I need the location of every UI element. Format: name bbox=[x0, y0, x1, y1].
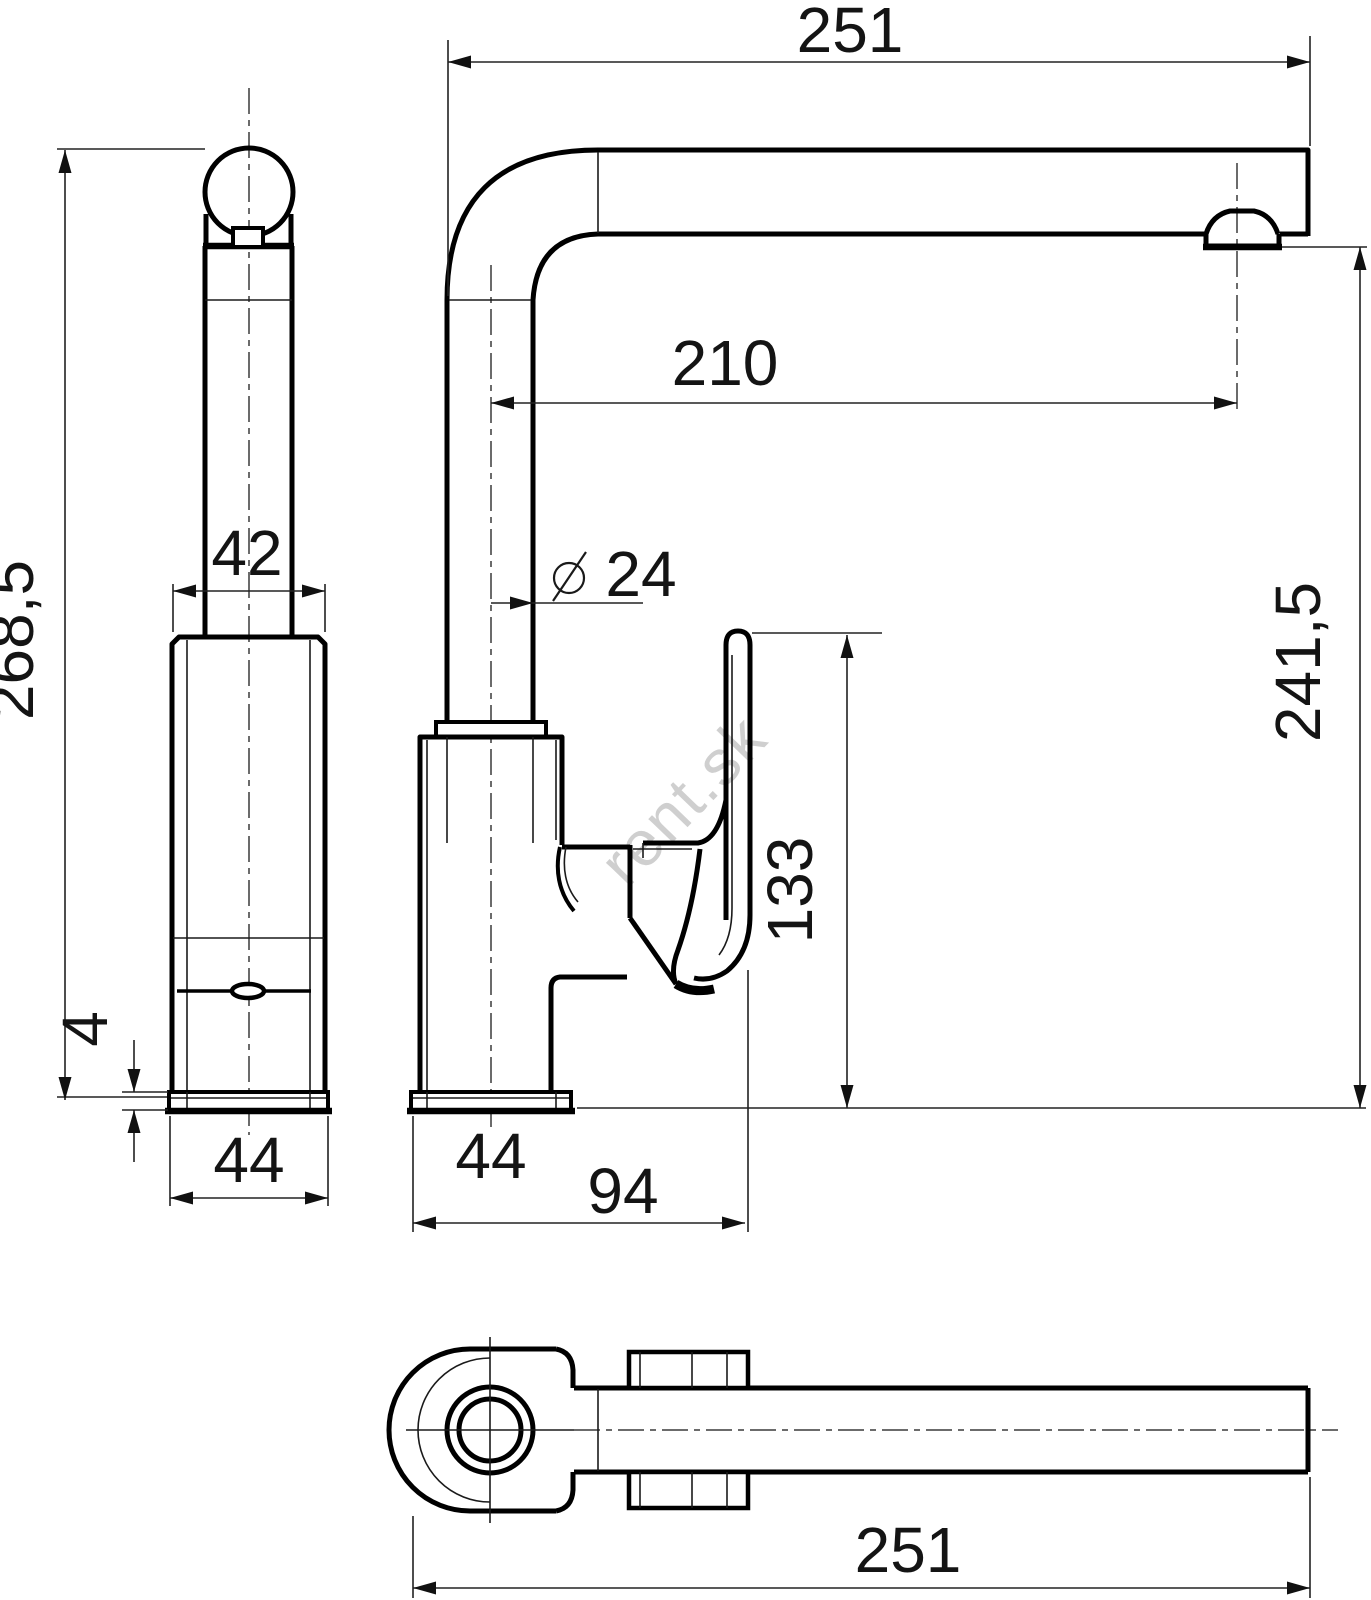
front-view-dimensions: 268,5 42 4 44 bbox=[0, 149, 328, 1206]
dim-handle-height: 133 bbox=[754, 837, 826, 944]
faucet-dimension-drawing: rent.sk 268,5 42 4 bbox=[0, 0, 1371, 1600]
aerator-tab bbox=[233, 228, 263, 247]
top-crosshair bbox=[406, 1337, 574, 1523]
aerator-dome bbox=[1206, 211, 1278, 234]
dim-pipe-diameter: 24 bbox=[605, 538, 676, 610]
spout-transition-lines bbox=[449, 152, 598, 300]
front-base-flange bbox=[169, 1092, 328, 1110]
top-handle-block-lower bbox=[629, 1472, 748, 1508]
side-base-flange bbox=[411, 1092, 571, 1110]
handle-front-curve bbox=[674, 849, 700, 984]
dim-spout-reach-top: 251 bbox=[797, 0, 904, 66]
top-view-dimensions: 251 bbox=[413, 1477, 1310, 1598]
spout-inner bbox=[533, 234, 1206, 723]
hub-diagonal bbox=[630, 918, 676, 984]
top-handle-block-upper bbox=[629, 1352, 748, 1388]
side-view-dimensions: 251 210 24 133 241,5 44 94 bbox=[413, 0, 1367, 1232]
technical-drawing: rent.sk 268,5 42 4 bbox=[0, 0, 1371, 1600]
dim-base-depth: 94 bbox=[587, 1155, 658, 1227]
top-view bbox=[389, 1337, 1338, 1523]
dim-base-plate-thickness: 4 bbox=[49, 1011, 121, 1047]
dim-column-width: 42 bbox=[211, 517, 282, 589]
dim-spout-reach-bottom: 251 bbox=[855, 1514, 962, 1586]
handle-bottom-shadow bbox=[676, 984, 714, 991]
dim-outlet-height: 241,5 bbox=[1262, 582, 1334, 742]
dim-base-width-side: 44 bbox=[455, 1120, 526, 1192]
dim-spout-offset: 210 bbox=[672, 327, 779, 399]
dim-base-width-front: 44 bbox=[213, 1124, 284, 1196]
hub-claw-inner bbox=[564, 847, 578, 902]
body-lower-right bbox=[551, 977, 627, 1092]
dim-total-height: 268,5 bbox=[0, 560, 47, 720]
front-outlet-lens bbox=[232, 984, 264, 998]
side-view bbox=[407, 150, 1308, 1128]
front-view bbox=[165, 88, 332, 1135]
